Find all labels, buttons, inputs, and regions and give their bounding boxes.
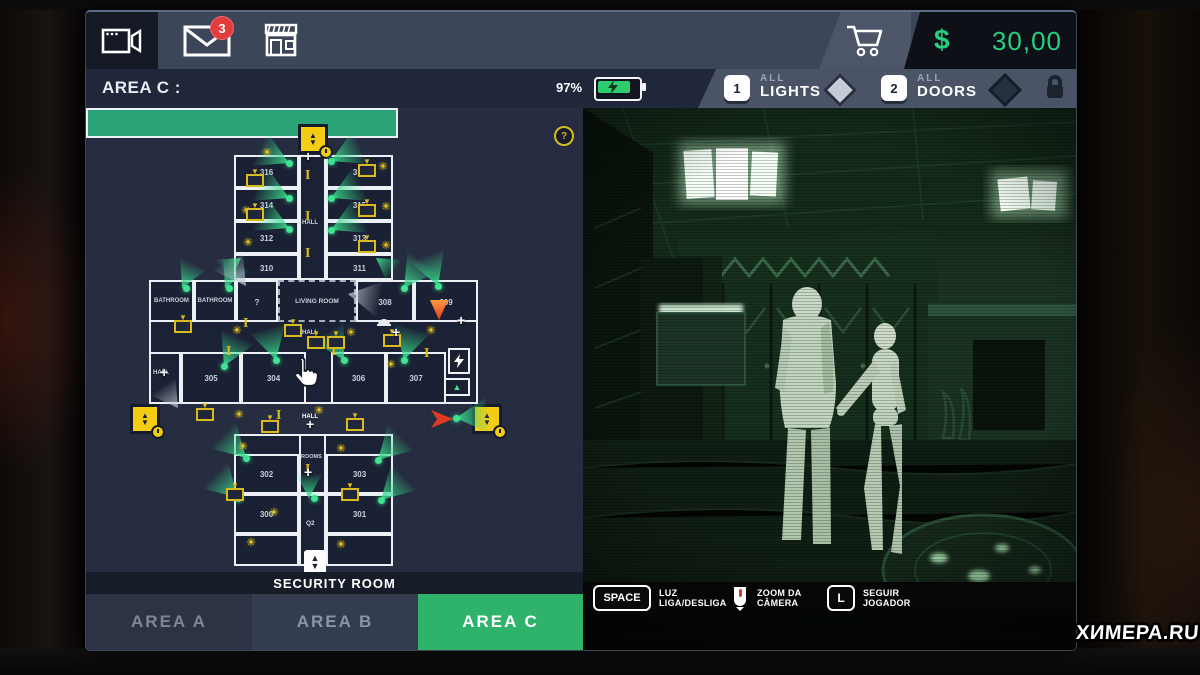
tab-area-a[interactable]: AREA A (86, 594, 252, 650)
watermark: XИMEPA.RU (1075, 622, 1200, 645)
light-dot (221, 363, 228, 370)
camera-direction-arrow[interactable] (431, 410, 453, 428)
monitor-bezel-bottom (0, 648, 1200, 675)
cart-button[interactable] (819, 12, 911, 69)
light-icon: ☀ (346, 326, 356, 339)
waypoint-plus: + (304, 464, 312, 480)
door-icon[interactable]: ▼ (174, 320, 192, 333)
all-doors-toggle[interactable]: ALL DOORS (917, 73, 977, 100)
light-icon: ☀ (426, 324, 436, 337)
camera-controls-bar: SPACE LUZLIGA/DESLIGA ZOOM DACÂMERA L SE… (583, 582, 1076, 614)
door-blocked-icon[interactable]: I (305, 170, 310, 182)
mail-badge: 3 (210, 16, 234, 40)
l-key-hint: L (827, 585, 855, 611)
battery-percent: 97% (556, 80, 582, 95)
elevator-timer-badge (151, 425, 165, 439)
door-icon[interactable]: ▼ (261, 420, 279, 433)
light-dot (328, 158, 335, 165)
light-icon: ☀ (381, 200, 391, 213)
light-dot (401, 357, 408, 364)
light-icon: ☀ (336, 538, 346, 551)
elevator-marker-box[interactable]: ▲ (444, 378, 470, 396)
door-icon[interactable]: ▼ (358, 240, 376, 253)
generator-box[interactable] (448, 348, 470, 374)
door-blocked-icon[interactable]: I (243, 318, 248, 330)
tab-area-b[interactable]: AREA B (252, 594, 418, 650)
tab-cameras[interactable] (86, 12, 158, 69)
space-key-hint: SPACE (593, 585, 651, 611)
light-dot (435, 283, 442, 290)
doors-state-icon (988, 73, 1022, 107)
door-blocked-icon[interactable]: I (424, 348, 429, 360)
light-icon: ☀ (262, 146, 272, 159)
door-icon[interactable]: ▼ (341, 488, 359, 501)
shop-icon (262, 23, 308, 59)
map-room-306[interactable]: 306 (331, 352, 386, 404)
door-icon[interactable]: ▼ (358, 164, 376, 177)
stairs-exit-icon[interactable]: ▲▼ (304, 550, 326, 574)
light-dot (286, 195, 293, 202)
tab-area-c-active[interactable]: AREA C (418, 594, 583, 650)
door-icon[interactable]: ▼ (226, 488, 244, 501)
light-icon: ☀ (232, 324, 242, 337)
q2-label: Q2 (306, 520, 315, 527)
light-dot (401, 285, 408, 292)
elevator-timer-badge (493, 425, 507, 439)
light-icon: ☀ (314, 404, 324, 417)
door-icon[interactable]: ▼ (246, 174, 264, 187)
map-room-303[interactable]: 303 (326, 454, 393, 494)
light-icon: ☀ (386, 358, 396, 371)
light-dot (378, 497, 385, 504)
waypoint-plus: + (392, 324, 400, 340)
all-lights-toggle[interactable]: ALL LIGHTS (760, 73, 821, 100)
monitor-bezel-left (0, 0, 85, 675)
security-room-label: SECURITY ROOM (86, 572, 583, 594)
door-blocked-icon[interactable]: I (305, 211, 310, 223)
light-icon: ☀ (378, 160, 388, 173)
light-dot (286, 226, 293, 233)
light-dot (226, 285, 233, 292)
light-dot (453, 415, 460, 422)
light-dot (328, 227, 335, 234)
power-bolt-icon (454, 354, 464, 368)
map-room-sw[interactable] (234, 534, 299, 566)
bell-icon (376, 314, 392, 326)
light-dot (183, 285, 190, 292)
security-monitor-screen: 3 $ 30,00 AREA C : 97% (85, 10, 1077, 651)
door-icon[interactable]: ▼ (246, 208, 264, 221)
light-icon: ☀ (238, 440, 248, 453)
top-bar: 3 $ 30,00 (86, 12, 1076, 69)
floor-map-panel[interactable]: ? 316 317 314 315 312 313 310 311 HALL B… (86, 108, 583, 572)
light-dot (375, 457, 382, 464)
battery-icon (594, 77, 642, 101)
shop-button[interactable] (254, 20, 316, 62)
light-icon: ☀ (336, 442, 346, 455)
elevator-top[interactable]: ▲▼ (298, 124, 328, 154)
door-icon[interactable]: ▼ (284, 324, 302, 337)
camera-feed-panel[interactable]: SPACE LUZLIGA/DESLIGA ZOOM DACÂMERA L SE… (583, 108, 1076, 650)
door-icon[interactable]: ▼ (346, 418, 364, 431)
charging-bolt-icon (607, 80, 619, 94)
door-blocked-icon[interactable]: I (305, 248, 310, 260)
night-vision-scene (583, 108, 1076, 650)
waypoint-plus: + (304, 148, 312, 164)
follow-player-hint: SEGUIRJOGADOR (863, 588, 933, 608)
light-dot (311, 495, 318, 502)
padlock-icon (1044, 74, 1066, 102)
light-dot (273, 357, 280, 364)
waypoint-plus: + (160, 364, 168, 380)
door-icon[interactable]: ▼ (327, 336, 345, 349)
door-icon[interactable]: ▼ (358, 204, 376, 217)
area-title: AREA C : (102, 78, 181, 98)
currency-symbol: $ (934, 24, 950, 56)
elevator-timer-badge (319, 145, 333, 159)
light-icon: ☀ (269, 506, 279, 519)
rooms-corridor-label: ROOMS (301, 454, 322, 460)
light-toggle-hint: LUZLIGA/DESLIGA (659, 588, 725, 608)
map-room-living[interactable]: LIVING ROOM (278, 280, 356, 322)
light-icon: ☀ (246, 536, 256, 549)
light-icon: ☀ (243, 236, 253, 249)
light-dot (286, 160, 293, 167)
security-camera-icon (101, 26, 143, 56)
door-icon[interactable]: ▼ (196, 408, 214, 421)
light-dot (328, 195, 335, 202)
waypoint-plus: + (457, 312, 465, 328)
light-dot (341, 357, 348, 364)
monitor-bezel-right (1075, 0, 1200, 675)
money-display: $ 30,00 (904, 12, 1076, 69)
player-marker-icon: ▲ (453, 382, 462, 392)
lights-state-icon (823, 73, 857, 107)
door-blocked-icon[interactable]: I (226, 346, 231, 358)
switch-bar: 1 ALL LIGHTS 2 ALL DOORS (698, 69, 1076, 108)
mouse-scroll-icon (731, 585, 749, 611)
elevator-left[interactable]: ▲▼ (130, 404, 160, 434)
hand-cursor (289, 356, 323, 394)
zoom-hint: ZOOM DACÂMERA (757, 588, 815, 608)
light-icon: ☀ (381, 239, 391, 252)
cart-icon (845, 23, 885, 59)
key-1: 1 (724, 75, 750, 101)
help-button[interactable]: ? (554, 126, 574, 146)
balance-value: 30,00 (992, 26, 1062, 57)
door-icon[interactable]: ▼ (307, 336, 325, 349)
waypoint-plus: + (306, 416, 314, 432)
light-icon: ☀ (234, 408, 244, 421)
monitor-bezel-top (0, 0, 1200, 10)
light-dot (243, 455, 250, 462)
map-top-corridor (299, 155, 326, 280)
key-2: 2 (881, 75, 907, 101)
